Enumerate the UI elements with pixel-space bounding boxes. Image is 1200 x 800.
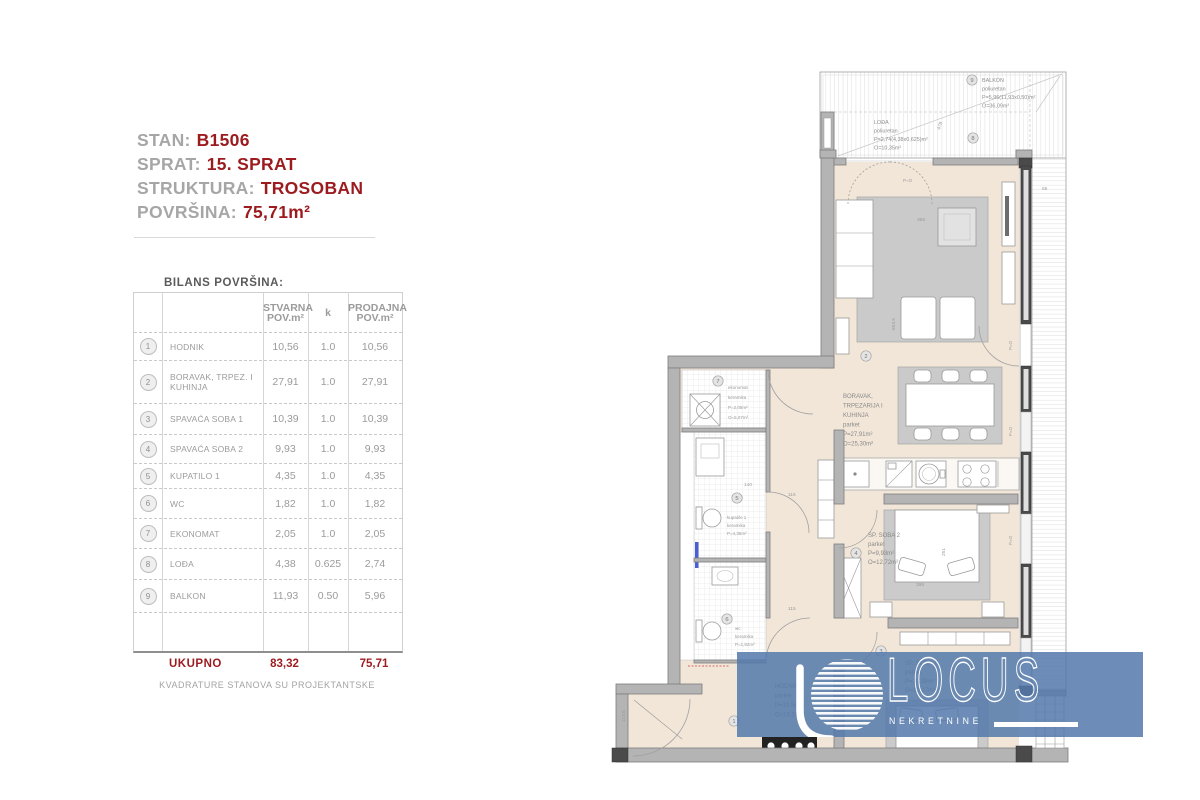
row-number-badge: 8 (140, 556, 157, 573)
total-stvarna: 83,32 (262, 658, 307, 670)
tv (1005, 196, 1009, 236)
nightstand (870, 602, 892, 617)
cell-prodajna: 10,39 (348, 413, 402, 425)
globe-icon (737, 652, 897, 737)
cell-prodajna: 10,56 (348, 341, 402, 353)
shaft (680, 432, 694, 660)
cell-num: 5 (134, 468, 162, 485)
cell-k: 1.0 (308, 470, 348, 482)
cell-prodajna: 5,96 (348, 590, 402, 602)
svg-text:9: 9 (970, 78, 973, 84)
header-stvarna: STVARNAPOV.m² (263, 303, 308, 323)
cell-stvarna: 2,05 (263, 528, 308, 540)
svg-text:368: 368 (917, 217, 925, 223)
armchair (901, 297, 936, 339)
table-row: 6 WC 1,82 1.0 1,82 (134, 489, 402, 519)
svg-text:6: 6 (725, 617, 728, 623)
row-number-badge: 3 (140, 411, 157, 428)
dining-set (906, 370, 994, 440)
svg-text:113.5: 113.5 (621, 710, 627, 722)
cell-num: 2 (134, 374, 162, 391)
cell-prodajna: 4,35 (348, 470, 402, 482)
svg-text:8: 8 (971, 136, 974, 142)
kitchen (838, 458, 1019, 490)
svg-text:65: 65 (1042, 186, 1048, 192)
info-value: 75,71m² (243, 202, 310, 222)
toilet-tank (696, 620, 702, 642)
svg-text:P=O: P=O (903, 178, 913, 183)
cell-prodajna: 1,82 (348, 498, 402, 510)
svg-text:115: 115 (788, 606, 796, 612)
info-row: SPRAT:15. SPRAT (137, 154, 363, 178)
svg-text:251: 251 (941, 548, 947, 556)
apartment-info: STAN:B1506 SPRAT:15. SPRAT STRUKTURA:TRO… (137, 130, 363, 226)
row-number-badge: 1 (140, 338, 157, 355)
cell-prodajna: 27,91 (348, 376, 402, 388)
cell-stvarna: 1,82 (263, 498, 308, 510)
cell-name: EKONOMAT (162, 529, 263, 539)
cell-k: 1.0 (308, 498, 348, 510)
cell-num: 6 (134, 495, 162, 512)
svg-text:5: 5 (735, 496, 738, 502)
dining-table (906, 384, 994, 426)
toilet-tank (696, 507, 702, 529)
toilet-bowl (703, 509, 721, 527)
table-footnote: KVADRATURE STANOVA SU PROJEKTANTSKE (133, 680, 401, 690)
cell-num: 9 (134, 588, 162, 605)
divider-line (134, 237, 375, 238)
cell-name: BALKON (162, 591, 263, 601)
svg-text:653.5: 653.5 (891, 318, 897, 330)
row-number-badge: 2 (140, 374, 157, 391)
info-value: B1506 (197, 130, 250, 150)
svg-text:396: 396 (916, 582, 924, 588)
cell-num: 8 (134, 556, 162, 573)
cell-stvarna: 10,39 (263, 413, 308, 425)
cell-num: 3 (134, 411, 162, 428)
cell-k: 0.50 (308, 590, 348, 602)
svg-text:140: 140 (744, 482, 752, 488)
cell-prodajna: 9,93 (348, 443, 402, 455)
row-number-badge: 7 (140, 525, 157, 542)
table-row: 2 BORAVAK, TRPEZ. I KUHINJA 27,91 1.0 27… (134, 361, 402, 404)
svg-text:2: 2 (864, 354, 867, 360)
cell-stvarna: 9,93 (263, 443, 308, 455)
cell-stvarna: 10,56 (263, 341, 308, 353)
table-row: 3 SPAVAĆA SOBA 1 10,39 1.0 10,39 (134, 404, 402, 435)
spacer-row (134, 613, 402, 651)
svg-text:P=O: P=O (1008, 340, 1013, 350)
table-header-row: STVARNAPOV.m² k PRODAJNAPOV.m² (134, 293, 402, 333)
cell-name: BORAVAK, TRPEZ. I KUHINJA (162, 372, 263, 392)
cell-k: 1.0 (308, 341, 348, 353)
cell-stvarna: 27,91 (263, 376, 308, 388)
info-row: POVRŠINA:75,71m² (137, 202, 363, 226)
table-row: 1 HODNIK 10,56 1.0 10,56 (134, 333, 402, 361)
table-row: 5 KUPATILO 1 4,35 1.0 4,35 (134, 464, 402, 489)
info-value: 15. SPRAT (207, 154, 297, 174)
cell-num: 7 (134, 525, 162, 542)
toilet-bowl (703, 622, 721, 640)
cell-name: KUPATILO 1 (162, 471, 263, 481)
logo-subtitle: NEKRETNINE (889, 716, 982, 727)
row-number-badge: 9 (140, 588, 157, 605)
total-row: UKUPNO 83,32 75,71 (133, 653, 401, 675)
cell-k: 1.0 (308, 376, 348, 388)
header-k: k (308, 308, 348, 318)
locus-logo-overlay: LOCUS NEKRETNINE (737, 652, 1143, 737)
table-row: 8 LOĐA 4,38 0.625 2,74 (134, 549, 402, 580)
info-label: STRUKTURA: (137, 178, 255, 198)
cell-prodajna: 2,05 (348, 528, 402, 540)
wc-sink (712, 567, 738, 585)
svg-text:P=O: P=O (1008, 535, 1013, 545)
area-table: STVARNAPOV.m² k PRODAJNAPOV.m² 1 HODNIK … (133, 292, 403, 690)
cell-k: 0.625 (308, 558, 348, 570)
cell-name: LOĐA (162, 559, 263, 569)
row-number-badge: 4 (140, 441, 157, 458)
cell-stvarna: 4,38 (263, 558, 308, 570)
table-row: 4 SPAVAĆA SOBA 2 9,93 1.0 9,93 (134, 435, 402, 464)
svg-text:115: 115 (788, 492, 796, 498)
kupatilo-label: kupatilo 1keramikaP=4,35m² (727, 515, 747, 536)
bench (977, 505, 1009, 513)
cell-name: SPAVAĆA SOBA 2 (162, 444, 263, 454)
nightstand (982, 602, 1004, 617)
cell-k: 1.0 (308, 528, 348, 540)
logo-wordmark: LOCUS (887, 652, 1044, 716)
header-prodajna: PRODAJNAPOV.m² (348, 303, 402, 323)
info-label: STAN: (137, 130, 191, 150)
cell-name: HODNIK (162, 342, 263, 352)
hall-cabinet (818, 460, 834, 538)
cell-num: 4 (134, 441, 162, 458)
cell-num: 1 (134, 338, 162, 355)
table-row: 9 BALKON 11,93 0.50 5,96 (134, 580, 402, 613)
cell-name: SPAVAĆA SOBA 1 (162, 414, 263, 424)
armchair (940, 297, 975, 339)
svg-text:7: 7 (716, 379, 719, 385)
info-row: STAN:B1506 (137, 130, 363, 154)
total-prodajna: 75,71 (347, 658, 401, 670)
cell-prodajna: 2,74 (348, 558, 402, 570)
info-row: STRUKTURA:TROSOBAN (137, 178, 363, 202)
cell-stvarna: 11,93 (263, 590, 308, 602)
row-number-badge: 6 (140, 495, 157, 512)
flyer-canvas: STAN:B1506 SPRAT:15. SPRAT STRUKTURA:TRO… (0, 0, 1200, 800)
cell-k: 1.0 (308, 443, 348, 455)
row-number-badge: 5 (140, 468, 157, 485)
info-label: POVRŠINA: (137, 202, 237, 222)
total-label: UKUPNO (133, 658, 262, 670)
cell-stvarna: 4,35 (263, 470, 308, 482)
logo-rule (994, 722, 1078, 727)
cell-name: WC (162, 499, 263, 509)
sideboard (1002, 252, 1015, 304)
svg-text:P=O: P=O (1008, 426, 1013, 436)
dresser (900, 632, 1010, 645)
svg-text:1: 1 (732, 719, 735, 725)
area-table-grid: STVARNAPOV.m² k PRODAJNAPOV.m² 1 HODNIK … (133, 292, 403, 653)
info-value: TROSOBAN (261, 178, 364, 198)
info-label: SPRAT: (137, 154, 201, 174)
shower-glass (695, 542, 699, 568)
cell-k: 1.0 (308, 413, 348, 425)
table-title: BILANS POVRŠINA: (164, 277, 284, 289)
table-row: 7 EKONOMAT 2,05 1.0 2,05 (134, 519, 402, 549)
